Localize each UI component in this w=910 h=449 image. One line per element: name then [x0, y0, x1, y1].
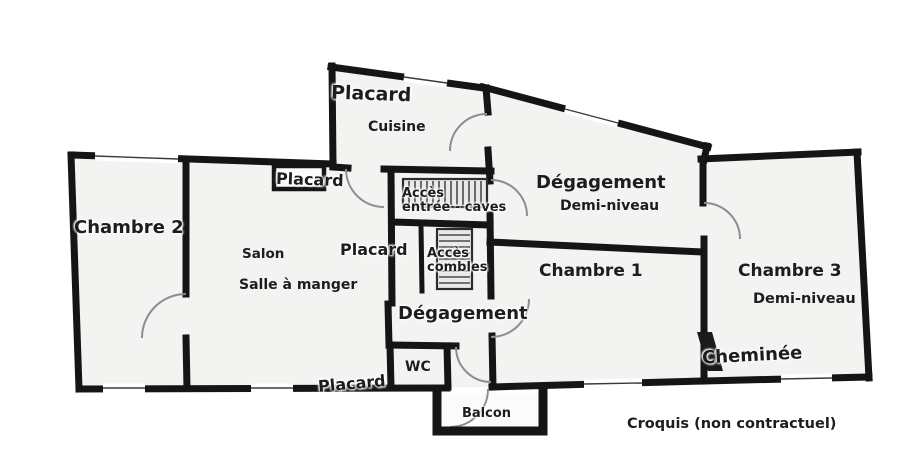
label-placard-centre: Placard — [340, 241, 408, 258]
label-acces-caves-line1: Accès — [402, 187, 506, 201]
label-placard-entree: Placard — [276, 170, 344, 190]
label-chambre-1: Chambre 1 — [539, 262, 643, 280]
label-salle-a-manger: Salle à manger — [239, 278, 357, 293]
floorplan-canvas: Placard Cuisine Placard Chambre 2 Salon … — [0, 0, 910, 449]
label-demi-niveau-chambre3: Demi-niveau — [753, 292, 856, 308]
plan-caption: Croquis (non contractuel) — [627, 417, 836, 433]
label-acces-caves: Accès entrée - caves — [402, 187, 506, 215]
label-chambre-2: Chambre 2 — [74, 218, 184, 237]
label-placard-cuisine: Placard — [331, 83, 412, 106]
label-acces-combles-line1: Accès — [427, 247, 488, 261]
label-demi-niveau-haut: Demi-niveau — [560, 199, 659, 214]
label-degagement-haut: Dégagement — [536, 173, 666, 192]
label-cuisine: Cuisine — [368, 120, 426, 135]
label-acces-combles: Accès combles — [427, 247, 488, 275]
label-salon: Salon — [242, 247, 284, 262]
label-acces-caves-line2: entrée - caves — [402, 201, 506, 215]
label-acces-combles-line2: combles — [427, 261, 488, 275]
label-chambre-3: Chambre 3 — [738, 262, 842, 280]
label-degagement-bas: Dégagement — [398, 304, 528, 323]
label-wc: WC — [405, 360, 431, 375]
label-balcon: Balcon — [462, 407, 511, 421]
